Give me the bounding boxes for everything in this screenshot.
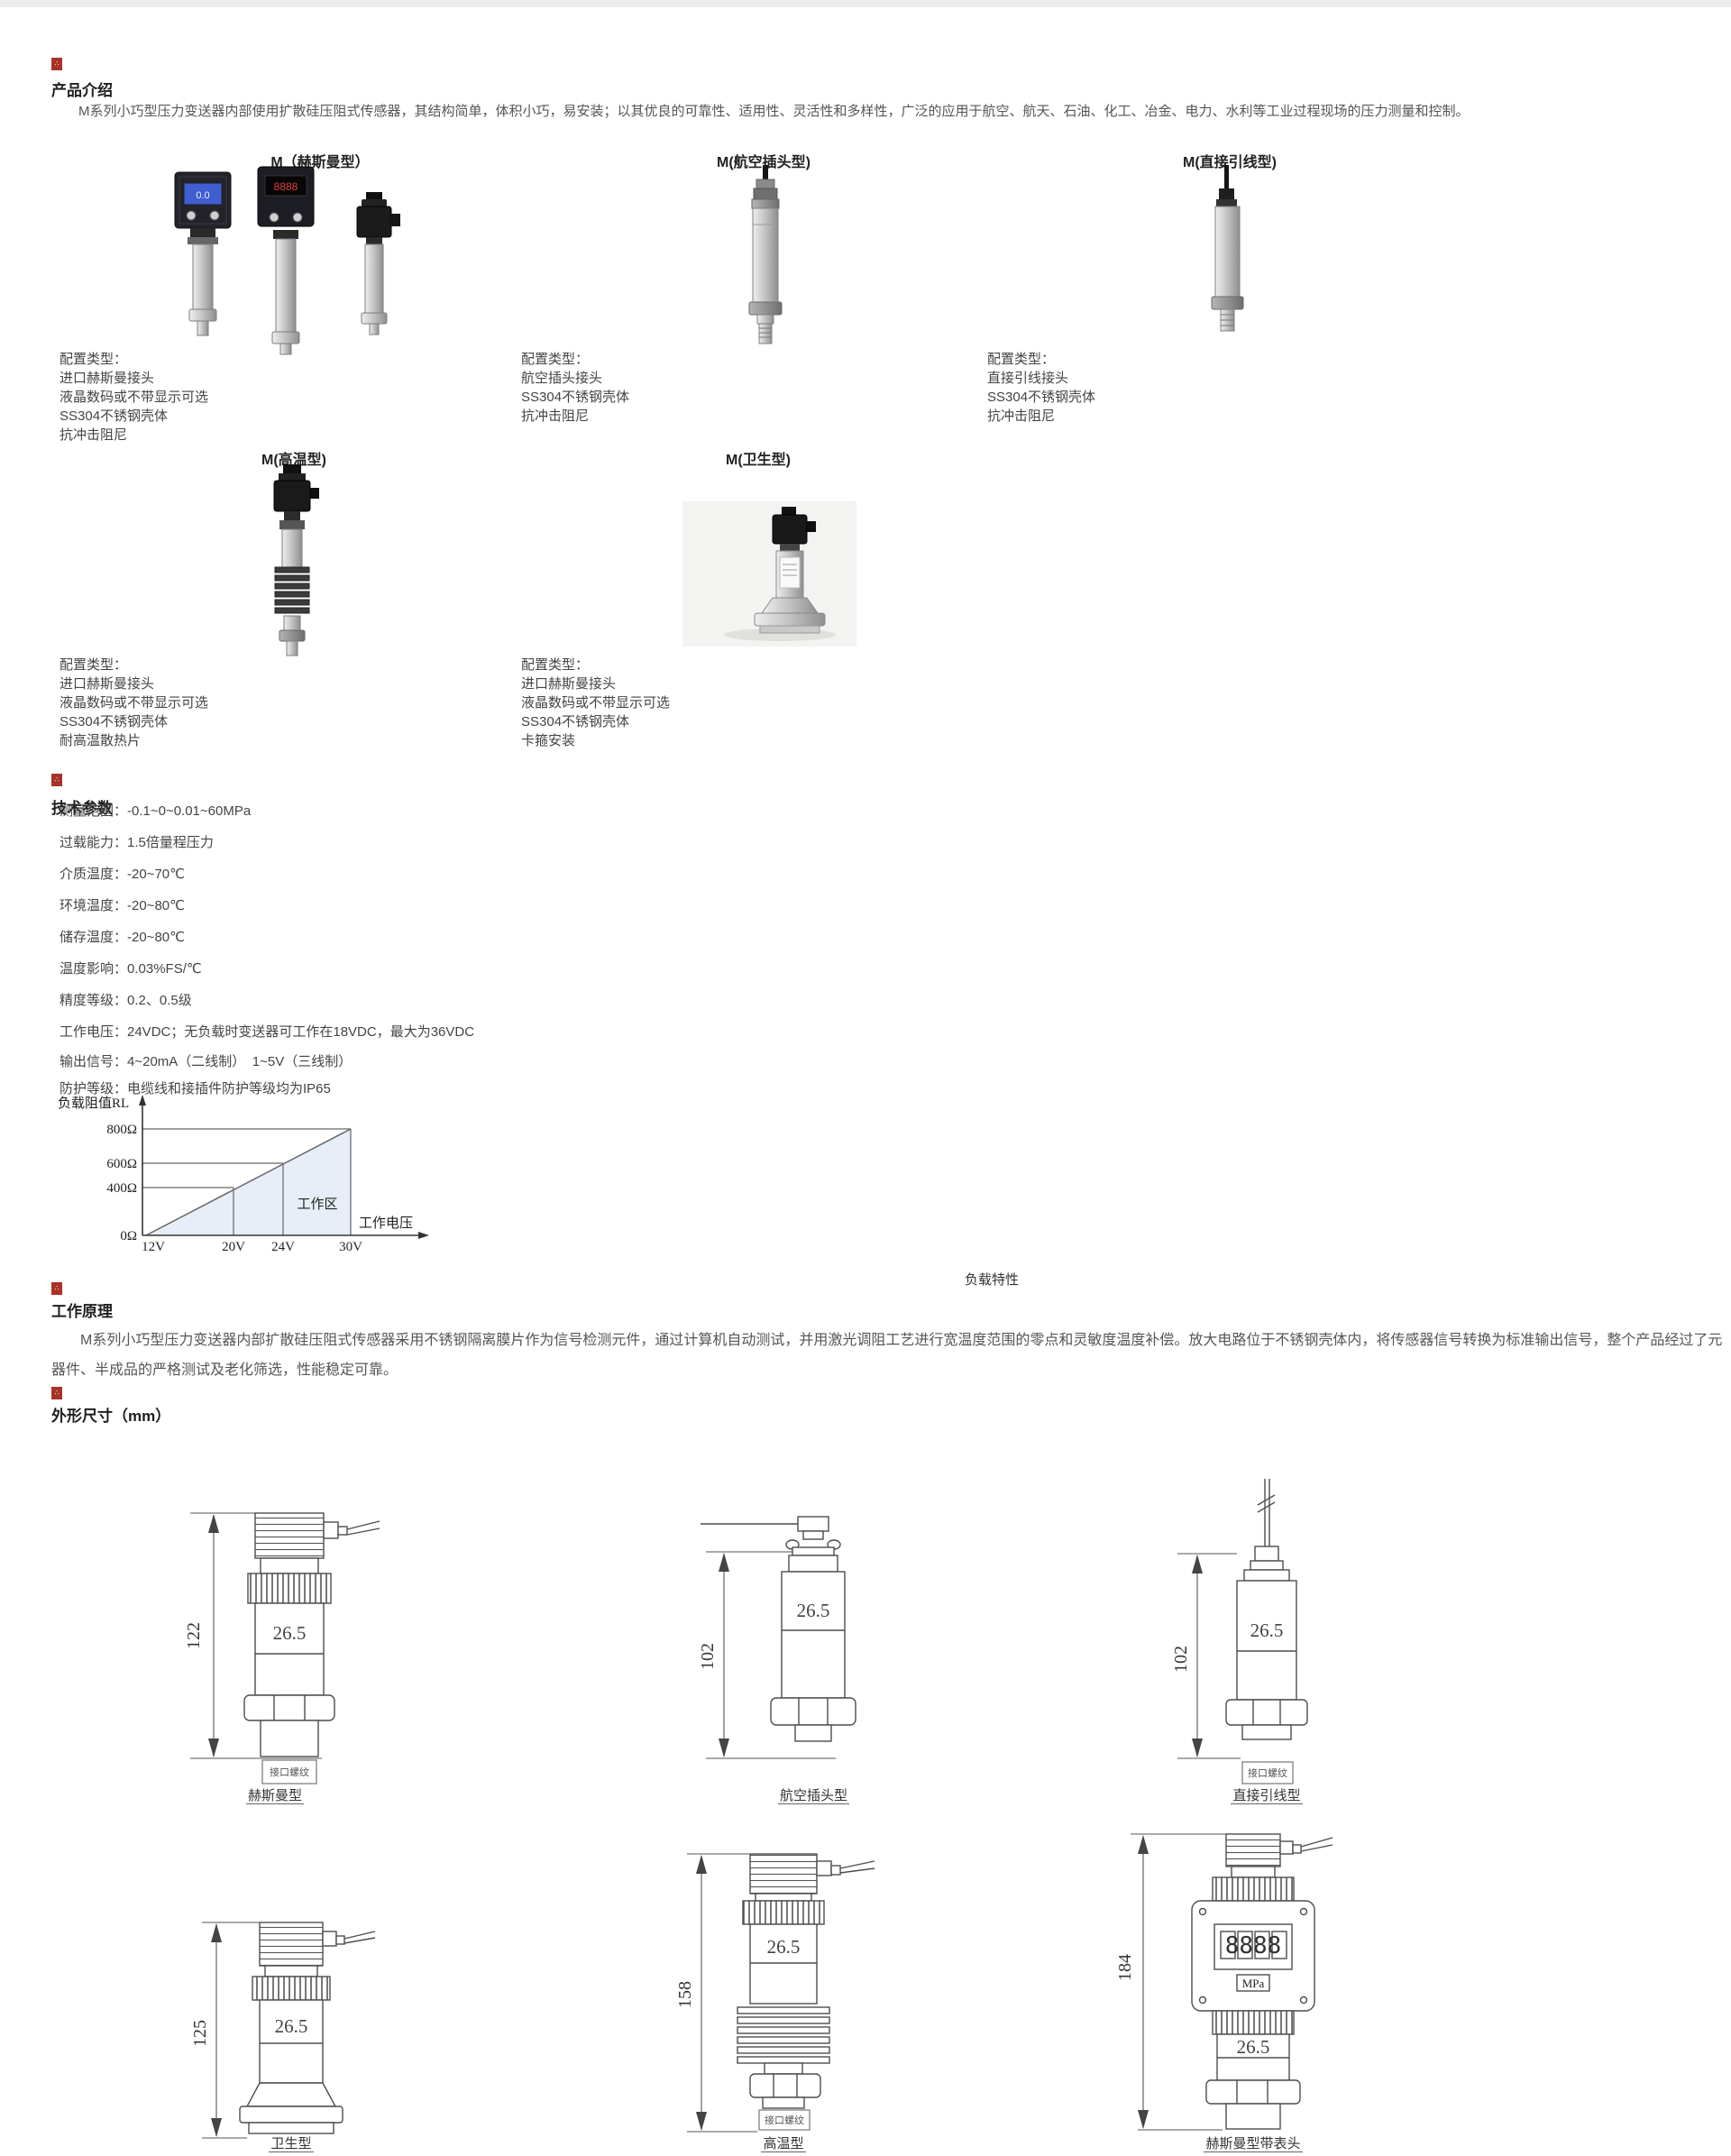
config-line: 配置类型： xyxy=(60,656,208,674)
config-line: 进口赫斯曼接头 xyxy=(60,674,208,693)
param-line: 温度影响：0.03%FS/℃ xyxy=(60,959,202,975)
body-width-label: 26.5 xyxy=(797,1600,830,1621)
config-line: SS304不锈钢壳体 xyxy=(521,388,629,407)
config-line: SS304不锈钢壳体 xyxy=(987,388,1095,407)
ytick-600: 600Ω xyxy=(106,1157,137,1171)
body-width-label: 26.5 xyxy=(1250,1619,1284,1641)
dim-height: 184 xyxy=(1115,1954,1135,1981)
drawing-aviation-plug: 102 26.5 xyxy=(699,1492,893,1808)
y-axis-arrow-icon xyxy=(139,1095,146,1106)
thread-label: 接口螺纹 xyxy=(1248,1766,1287,1779)
product-label-sticker xyxy=(780,557,800,588)
param-line: 精度等级：0.2、0.5级 xyxy=(60,990,192,1006)
config-line: SS304不锈钢壳体 xyxy=(521,712,670,731)
param-line: 输出信号：4~20mA（二线制） 1~5V（三线制） xyxy=(60,1051,352,1068)
ytick-0: 0Ω xyxy=(120,1229,137,1243)
config-line: 配置类型： xyxy=(987,350,1095,369)
config-line: 液晶数码或不带显示可选 xyxy=(60,388,208,407)
drawing-caption: 高温型 xyxy=(702,2133,865,2152)
gauge-digits: 8888 xyxy=(1225,1932,1282,1959)
drawing-caption-text: 赫斯曼型带表头 xyxy=(1204,2136,1302,2152)
body-width-label: 26.5 xyxy=(767,1936,801,1958)
button-icon xyxy=(187,211,196,220)
config-line: SS304不锈钢壳体 xyxy=(60,407,208,426)
photo-sanitary-type xyxy=(682,501,856,647)
drawing-caption: 赫斯曼型带表头 xyxy=(1163,2133,1343,2152)
xtick-24v: 24V xyxy=(271,1240,295,1254)
drawing-caption-text: 卫生型 xyxy=(269,2136,313,2152)
device-lcd-display: 0.0 xyxy=(175,172,231,335)
thread-label: 接口螺纹 xyxy=(765,2114,804,2126)
xtick-30v: 30V xyxy=(339,1240,362,1254)
drawing-caption: 直接引线型 xyxy=(1186,1785,1348,1804)
drawing-caption-text: 直接引线型 xyxy=(1231,1788,1302,1804)
photo-direct-lead-type xyxy=(1189,165,1266,350)
config-line: 航空插头接头 xyxy=(521,369,629,388)
lcd-value: 0.0 xyxy=(196,190,209,201)
section-bullet-icon: ∴ xyxy=(51,58,62,70)
drawing-hirschmann: 122 26.5 接口螺纹 xyxy=(167,1477,437,1793)
load-characteristic-chart: 负载阻值RL 800Ω 600Ω 400Ω 0Ω 12V 20V 24V 30V… xyxy=(36,1091,442,1255)
config-list-high-temp: 配置类型： 进口赫斯曼接头 液晶数码或不带显示可选 SS304不锈钢壳体 耐高温… xyxy=(60,656,208,750)
top-edge-bar xyxy=(0,0,1731,7)
config-line: 耐高温散热片 xyxy=(60,731,208,750)
dim-height: 102 xyxy=(699,1643,718,1670)
drawing-high-temp: 158 26.5 接口螺纹 xyxy=(676,1839,888,2151)
config-line: 液晶数码或不带显示可选 xyxy=(521,693,670,712)
working-area-label: 工作区 xyxy=(297,1197,337,1212)
xtick-20v: 20V xyxy=(222,1240,245,1254)
principle-heading: 工作原理 xyxy=(51,1298,113,1321)
body-width-label: 26.5 xyxy=(275,2015,308,2037)
xtick-12v: 12V xyxy=(142,1240,165,1254)
param-line: 环境温度：-20~80℃ xyxy=(60,895,185,912)
thread-label: 接口螺纹 xyxy=(270,1766,309,1778)
device-plain-connector xyxy=(357,192,400,335)
product-spec-page: ∴ 产品介绍 M系列小巧型压力变送器内部使用扩散硅压阻式传感器，其结构简单，体积… xyxy=(0,0,1731,2156)
drawing-sanitary: 125 26.5 xyxy=(189,1912,388,2148)
config-line: 进口赫斯曼接头 xyxy=(521,674,670,693)
config-list-direct-lead: 配置类型： 直接引线接头 SS304不锈钢壳体 抗冲击阻尼 xyxy=(987,350,1095,426)
dims-heading: 外形尺寸（mm） xyxy=(51,1403,170,1426)
config-line: 配置类型： xyxy=(521,350,629,369)
heat-sink-fins xyxy=(737,2007,829,2063)
gauge-unit-label: MPa xyxy=(1242,1977,1265,1990)
drawing-hirschmann-with-gauge: 184 8888 MPa 26.5 xyxy=(1100,1830,1379,2153)
config-line: SS304不锈钢壳体 xyxy=(60,712,208,731)
config-line: 配置类型： xyxy=(521,656,670,674)
config-list-sanitary: 配置类型： 进口赫斯曼接头 液晶数码或不带显示可选 SS304不锈钢壳体 卡箍安… xyxy=(521,656,670,750)
param-line: 过载能力：1.5倍量程压力 xyxy=(60,832,214,849)
drawing-caption-text: 航空插头型 xyxy=(778,1788,849,1804)
config-line: 卡箍安装 xyxy=(521,731,670,750)
param-line: 工作电压：24VDC；无负载时变送器可工作在18VDC，最大为36VDC xyxy=(60,1022,474,1038)
x-axis-arrow-icon xyxy=(418,1232,429,1239)
config-line: 配置类型： xyxy=(60,350,208,369)
dim-height: 102 xyxy=(1172,1646,1191,1673)
chart-caption: 负载特性 xyxy=(920,1270,1064,1289)
intro-paragraph: M系列小巧型压力变送器内部使用扩散硅压阻式传感器，其结构简单，体积小巧，易安装；… xyxy=(51,101,1725,122)
product-label-sanitary: M(卫生型) xyxy=(686,447,830,469)
chart-ylabel: 负载阻值RL xyxy=(58,1096,129,1111)
dim-height: 158 xyxy=(676,1981,695,2008)
heat-sink-fins xyxy=(275,567,309,613)
principle-paragraph: M系列小巧型压力变送器内部扩散硅压阻式传感器采用不锈钢隔离膜片作为信号检测元件，… xyxy=(51,1326,1728,1385)
config-line: 进口赫斯曼接头 xyxy=(60,369,208,388)
ytick-400: 400Ω xyxy=(106,1181,137,1196)
param-line: 测量范围：-0.1~0~0.01~60MPa xyxy=(60,801,251,817)
config-line: 抗冲击阻尼 xyxy=(521,407,629,426)
body-width-label: 26.5 xyxy=(1237,2036,1270,2058)
param-line: 储存温度：-20~80℃ xyxy=(60,927,185,943)
config-line: 液晶数码或不带显示可选 xyxy=(60,693,208,712)
section-bullet-icon: ∴ xyxy=(51,774,62,786)
dim-height: 122 xyxy=(184,1622,204,1649)
chart-xlabel: 工作电压 xyxy=(359,1216,413,1231)
intro-heading: 产品介绍 xyxy=(51,78,113,100)
drawing-direct-lead: 102 26.5 接口螺纹 xyxy=(1172,1474,1361,1797)
drawing-caption-text: 赫斯曼型 xyxy=(246,1788,304,1804)
button-icon xyxy=(293,213,302,222)
config-line: 抗冲击阻尼 xyxy=(987,407,1095,426)
ytick-800: 800Ω xyxy=(106,1123,137,1137)
config-line: 直接引线接头 xyxy=(987,369,1095,388)
section-bullet-icon: ∴ xyxy=(51,1282,62,1295)
config-list-aviation: 配置类型： 航空插头接头 SS304不锈钢壳体 抗冲击阻尼 xyxy=(521,350,629,426)
photo-hirschmann-type: 0.0 8888 xyxy=(151,165,417,359)
button-icon xyxy=(210,211,219,220)
dim-height: 125 xyxy=(190,2020,210,2047)
drawing-caption: 航空插头型 xyxy=(735,1785,893,1804)
param-line: 介质温度：-20~70℃ xyxy=(60,864,185,880)
drawing-caption-text: 高温型 xyxy=(761,2136,805,2152)
button-icon xyxy=(270,213,279,222)
body-width-label: 26.5 xyxy=(273,1622,307,1644)
photo-aviation-plug-type xyxy=(728,165,804,357)
config-list-hirschmann: 配置类型： 进口赫斯曼接头 液晶数码或不带显示可选 SS304不锈钢壳体 抗冲击… xyxy=(60,350,208,445)
drawing-caption: 卫生型 xyxy=(210,2133,372,2152)
led-value: 8888 xyxy=(274,180,298,193)
section-bullet-icon: ∴ xyxy=(51,1387,62,1399)
photo-high-temp-type xyxy=(245,464,343,657)
drawing-caption: 赫斯曼型 xyxy=(203,1785,347,1804)
config-line: 抗冲击阻尼 xyxy=(60,426,208,445)
device-led-display: 8888 xyxy=(258,167,314,354)
